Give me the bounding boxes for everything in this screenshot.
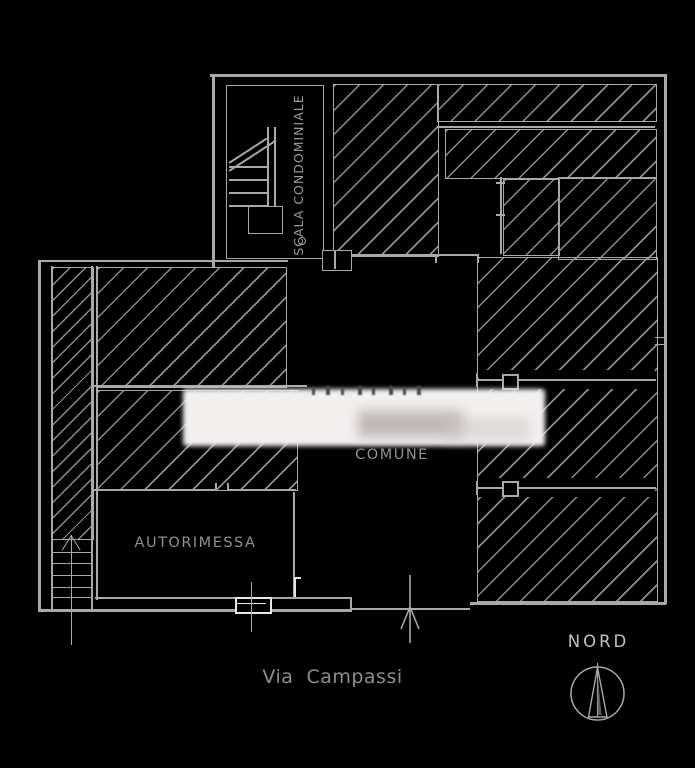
door-knob-mark [298, 237, 306, 245]
pillar-square [502, 374, 519, 390]
stair-landing-step [322, 250, 352, 271]
hatch-strip-left [52, 267, 94, 540]
landing-divider [334, 250, 336, 269]
street-label: Via Campassi [250, 667, 415, 688]
wall-left-outer [38, 260, 41, 612]
north-label: NORD [560, 633, 637, 651]
entrance-arrow-icon [398, 573, 422, 645]
redaction-smudge [445, 418, 530, 440]
hatch-block-upper-right [558, 177, 657, 260]
hatch-block-upper-left [333, 84, 439, 257]
hatch-band-top [437, 84, 657, 122]
gate-center-line [251, 582, 252, 632]
garage-door-mark [294, 577, 296, 598]
garage-top-line [228, 489, 296, 491]
hall-label: COMUNE [330, 448, 454, 464]
opening-bracket [476, 481, 478, 495]
stair-tread [229, 179, 268, 181]
door-tick [227, 483, 229, 491]
wall-line [437, 126, 655, 128]
door-tick [215, 483, 217, 491]
strip-right-line [91, 266, 93, 612]
redacted-text-remnant [389, 386, 393, 395]
wall-right-outer [664, 74, 667, 604]
wall-top [210, 74, 667, 77]
hatch-block-inner [503, 179, 560, 256]
garage-bottom-line [95, 597, 352, 599]
garage-gate [235, 597, 272, 614]
bottom-wall-left [38, 609, 352, 612]
hatch-band-second [445, 129, 657, 179]
redacted-text-remnant [326, 386, 330, 395]
redacted-text-remnant [341, 388, 344, 395]
pillar-square [502, 481, 519, 497]
redacted-text-remnant [372, 388, 375, 395]
window-tick [655, 337, 666, 338]
corridor-top-line [333, 254, 479, 256]
garage-top-line [91, 489, 216, 491]
garage-label: AUTORIMESSA [118, 536, 273, 552]
wall-line [91, 385, 307, 387]
floor-plan-canvas: SCALA CONDOMINIALE [0, 0, 695, 768]
hatch-block-left-upper [97, 267, 287, 388]
wall-upper-left [212, 74, 215, 267]
opening-bracket [476, 373, 478, 387]
garage-door-mark [294, 577, 301, 579]
stair-tread [229, 192, 268, 194]
redacted-text-remnant [312, 387, 315, 395]
partition-line [500, 177, 502, 254]
redacted-text-remnant [403, 387, 406, 395]
bottom-wall-right [470, 602, 666, 605]
redacted-text-remnant [358, 386, 362, 395]
north-compass-icon [567, 659, 629, 725]
stair-newel-box [248, 206, 283, 234]
redacted-text-remnant [417, 386, 421, 395]
stairwell-label: SCALA CONDOMINIALE [292, 90, 310, 260]
window-tick [655, 344, 666, 345]
wall-end-tick [435, 255, 437, 263]
leftwing-top-line [38, 260, 288, 262]
stair-direction-line [71, 535, 72, 645]
